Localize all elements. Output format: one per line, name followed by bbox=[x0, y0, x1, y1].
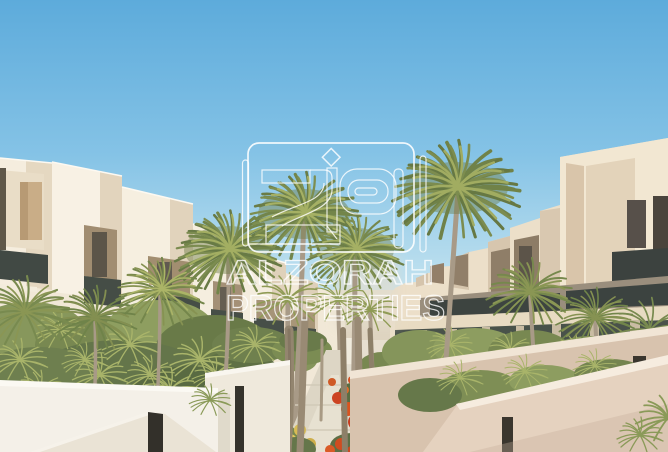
svg-text:PROPERTIES: PROPERTIES bbox=[226, 289, 445, 328]
svg-text:ALZORAH: ALZORAH bbox=[226, 254, 434, 292]
